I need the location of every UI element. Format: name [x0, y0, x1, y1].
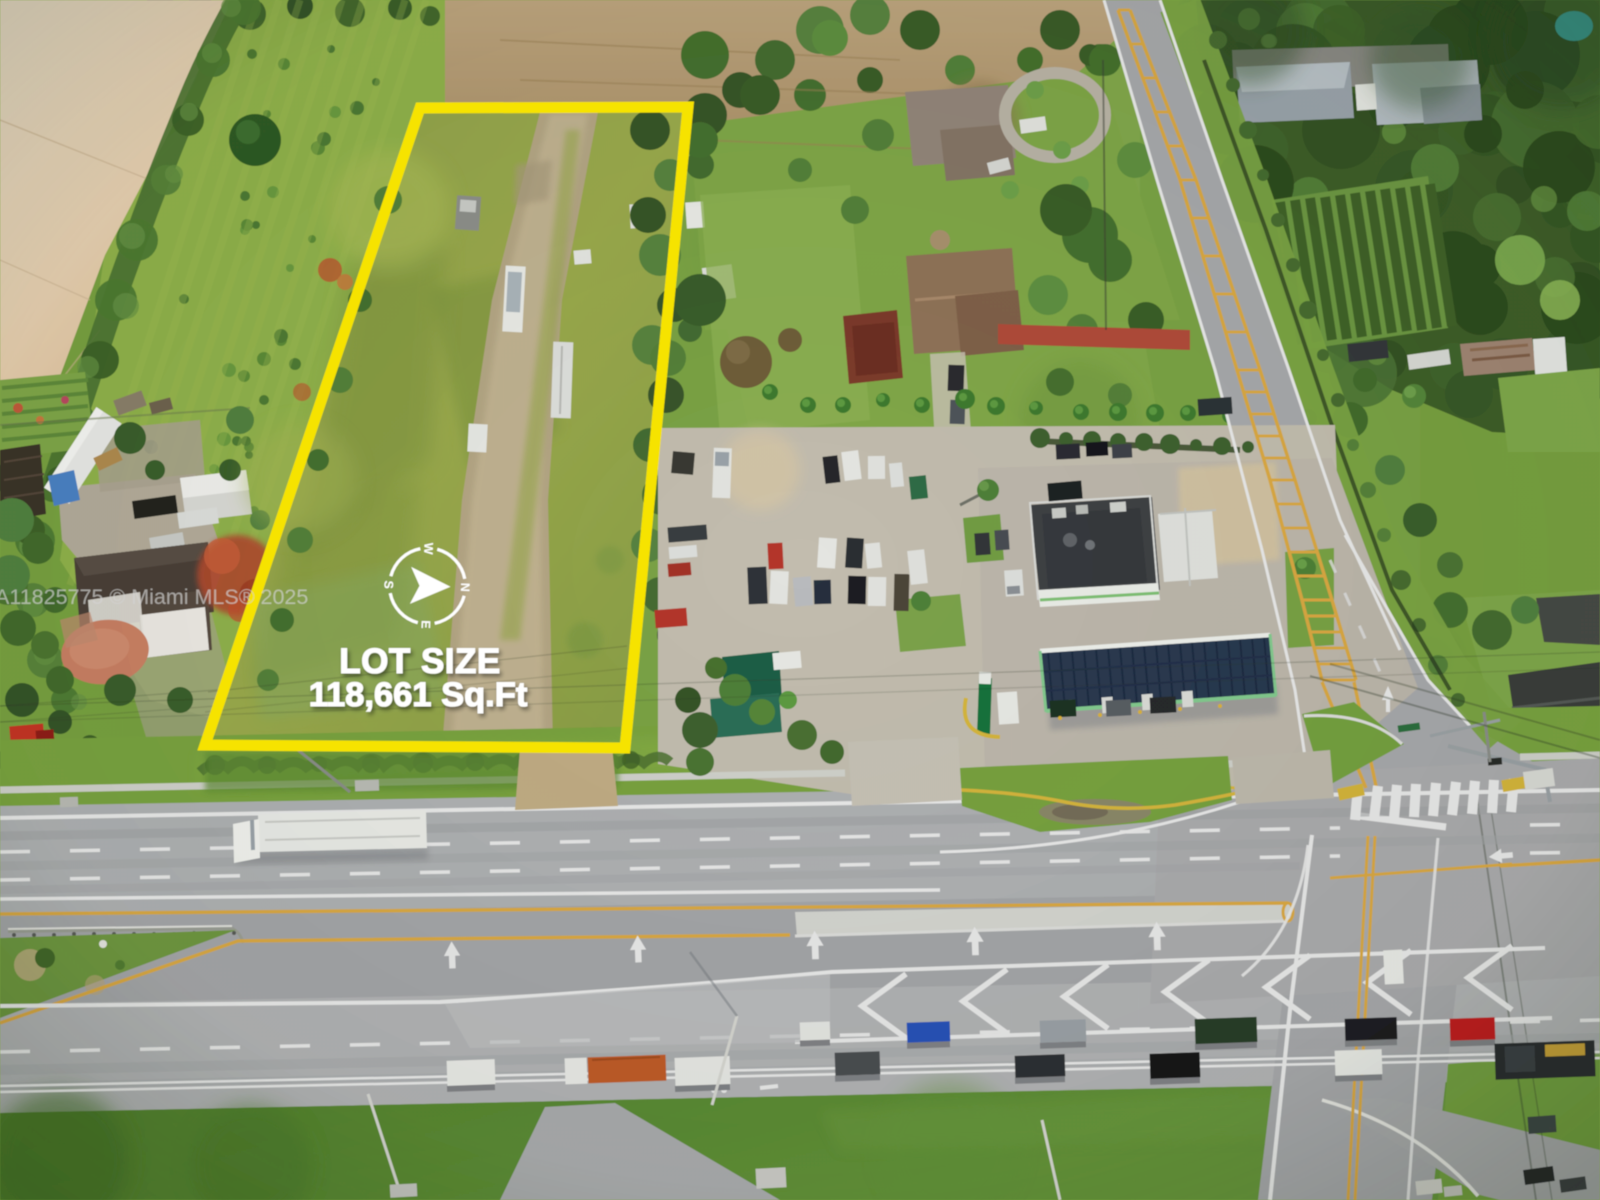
svg-text:A11825775 © Miami MLS® 2025: A11825775 © Miami MLS® 2025	[0, 585, 308, 609]
svg-text:118,661 Sq.Ft: 118,661 Sq.Ft	[309, 676, 528, 714]
svg-text:S: S	[381, 580, 395, 589]
svg-text:W: W	[421, 542, 435, 554]
svg-text:N: N	[458, 583, 472, 593]
svg-text:E: E	[419, 620, 433, 629]
